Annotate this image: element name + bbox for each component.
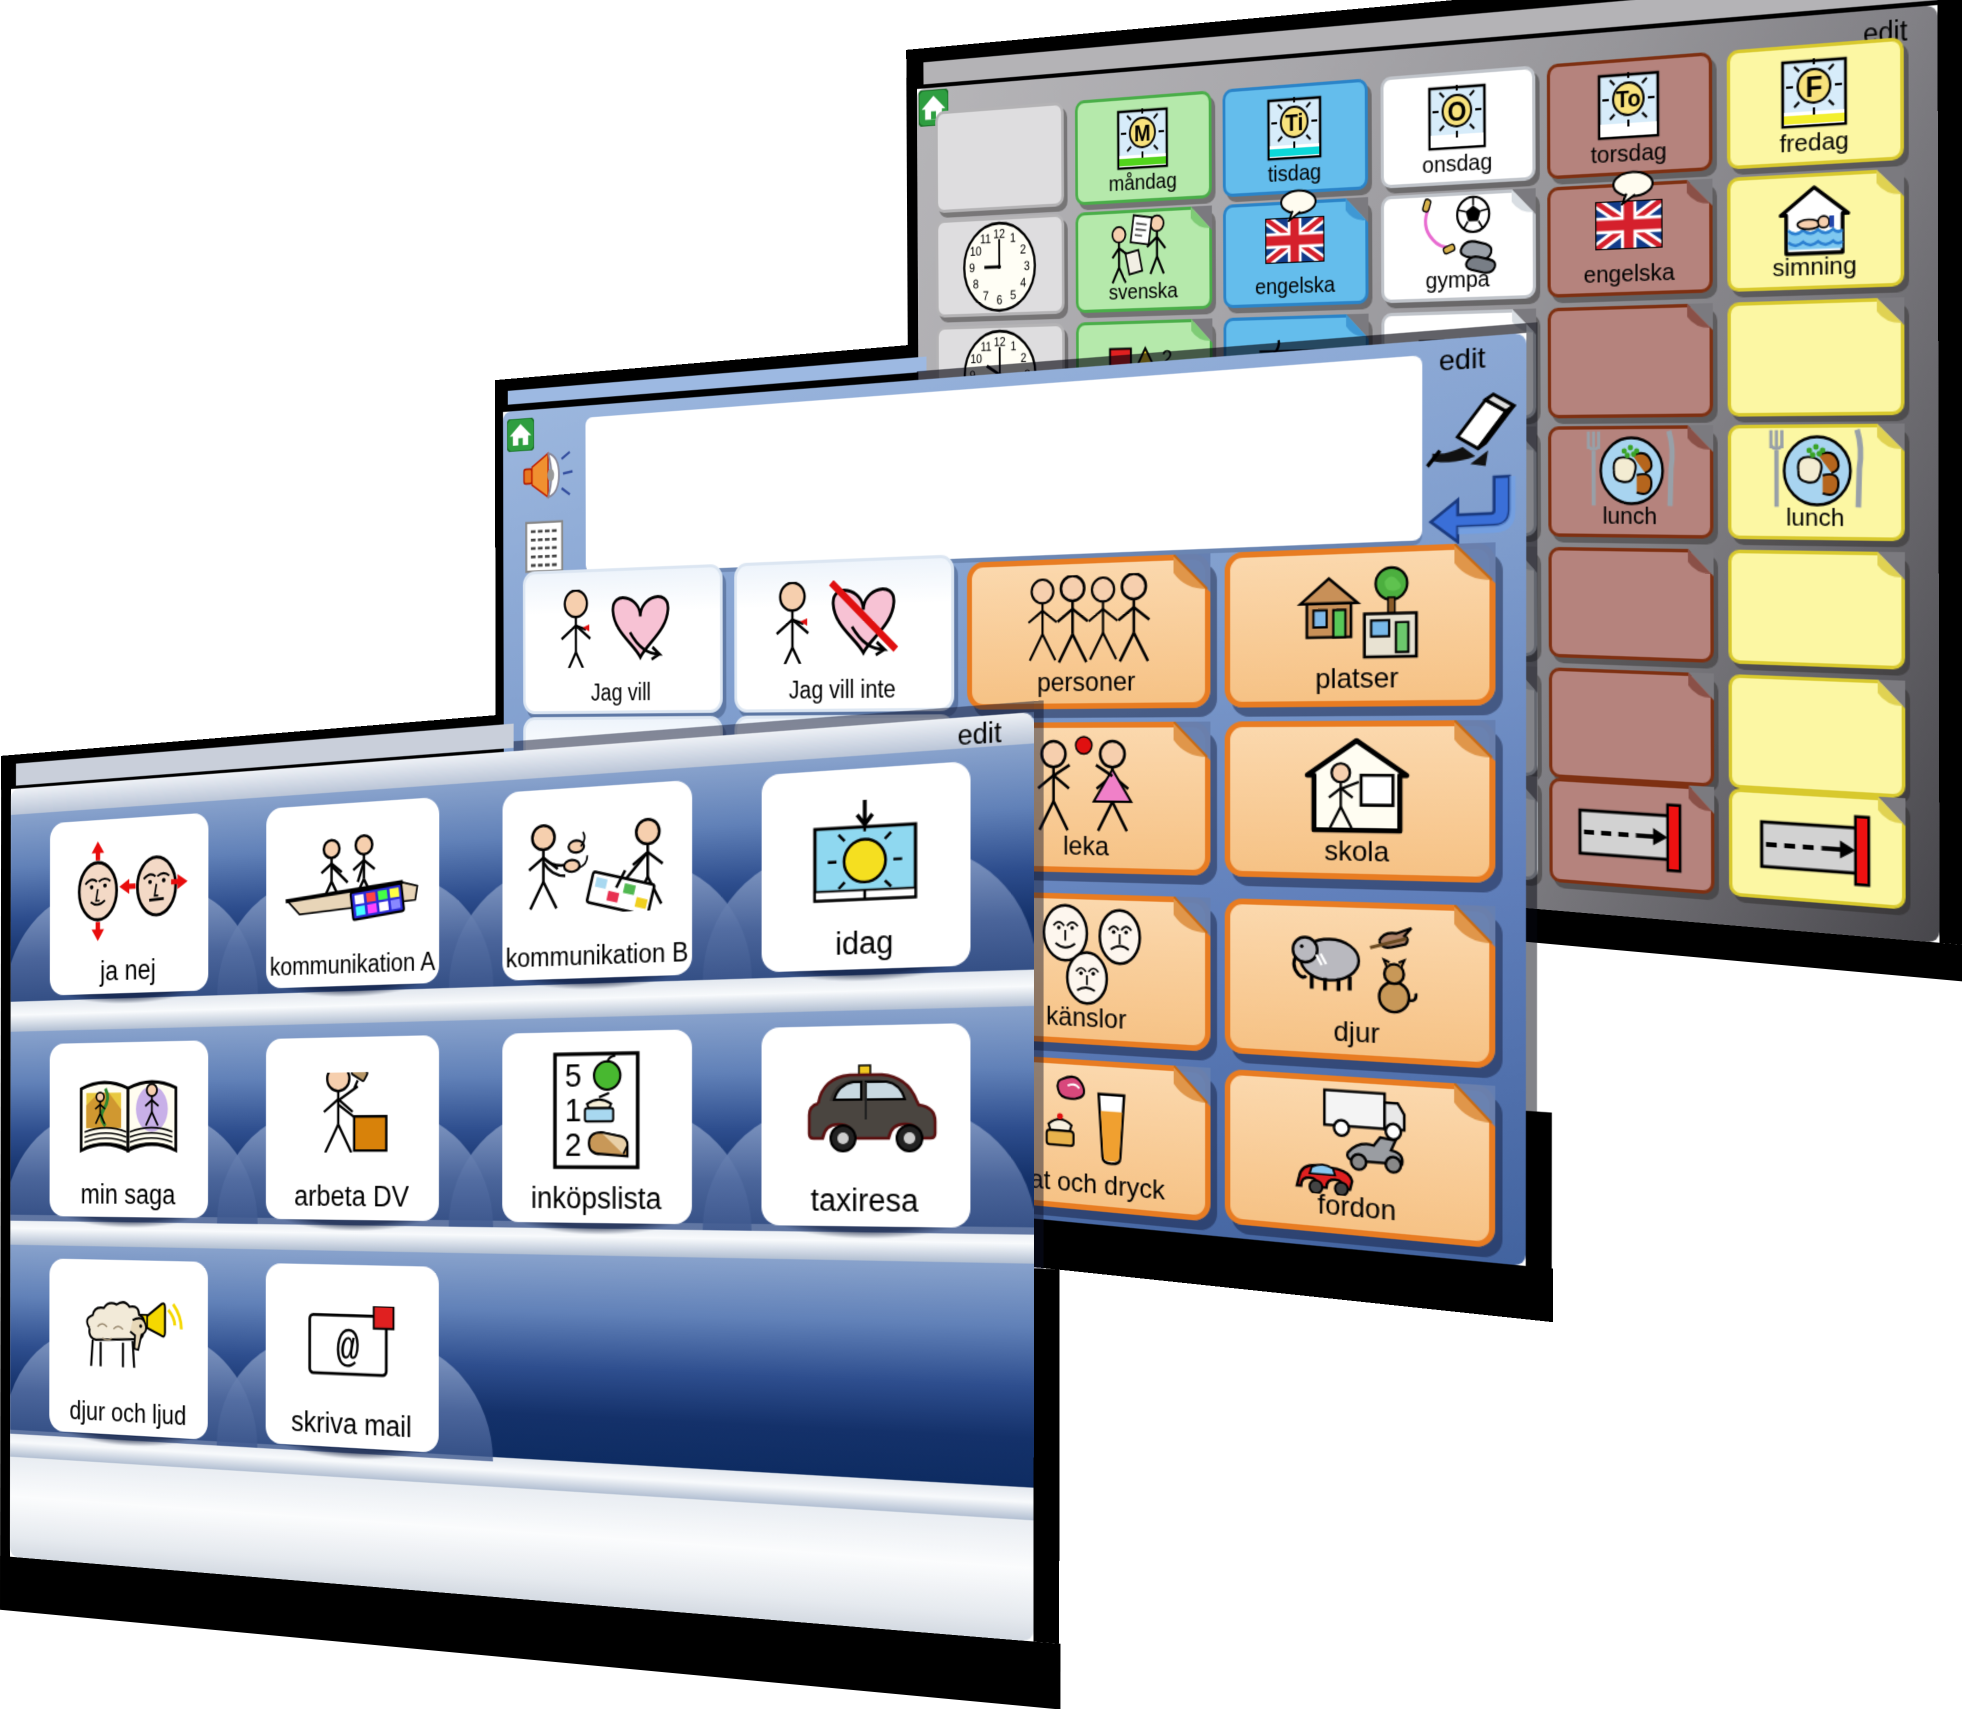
svg-text:2: 2: [1020, 242, 1026, 257]
svg-text:4: 4: [1020, 275, 1026, 290]
svg-text:1: 1: [564, 1093, 581, 1129]
svg-text:7: 7: [983, 289, 989, 304]
svg-text:3: 3: [1024, 258, 1030, 273]
svg-text:O: O: [1447, 97, 1466, 127]
svg-text:1: 1: [1010, 339, 1016, 354]
svg-text:To: To: [1616, 85, 1641, 113]
svg-text:F: F: [1805, 71, 1822, 103]
svg-text:2: 2: [564, 1127, 581, 1163]
svg-text:6: 6: [996, 293, 1002, 308]
svg-text:9: 9: [969, 261, 975, 276]
svg-text:8: 8: [973, 277, 979, 292]
svg-text:1: 1: [1010, 230, 1016, 245]
svg-text:@: @: [336, 1323, 360, 1375]
svg-text:Ti: Ti: [1285, 108, 1303, 136]
svg-text:11: 11: [981, 339, 992, 354]
svg-text:5: 5: [1010, 288, 1016, 303]
svg-text:M: M: [1134, 119, 1151, 146]
svg-text:5: 5: [564, 1058, 581, 1094]
svg-text:11: 11: [980, 232, 991, 247]
